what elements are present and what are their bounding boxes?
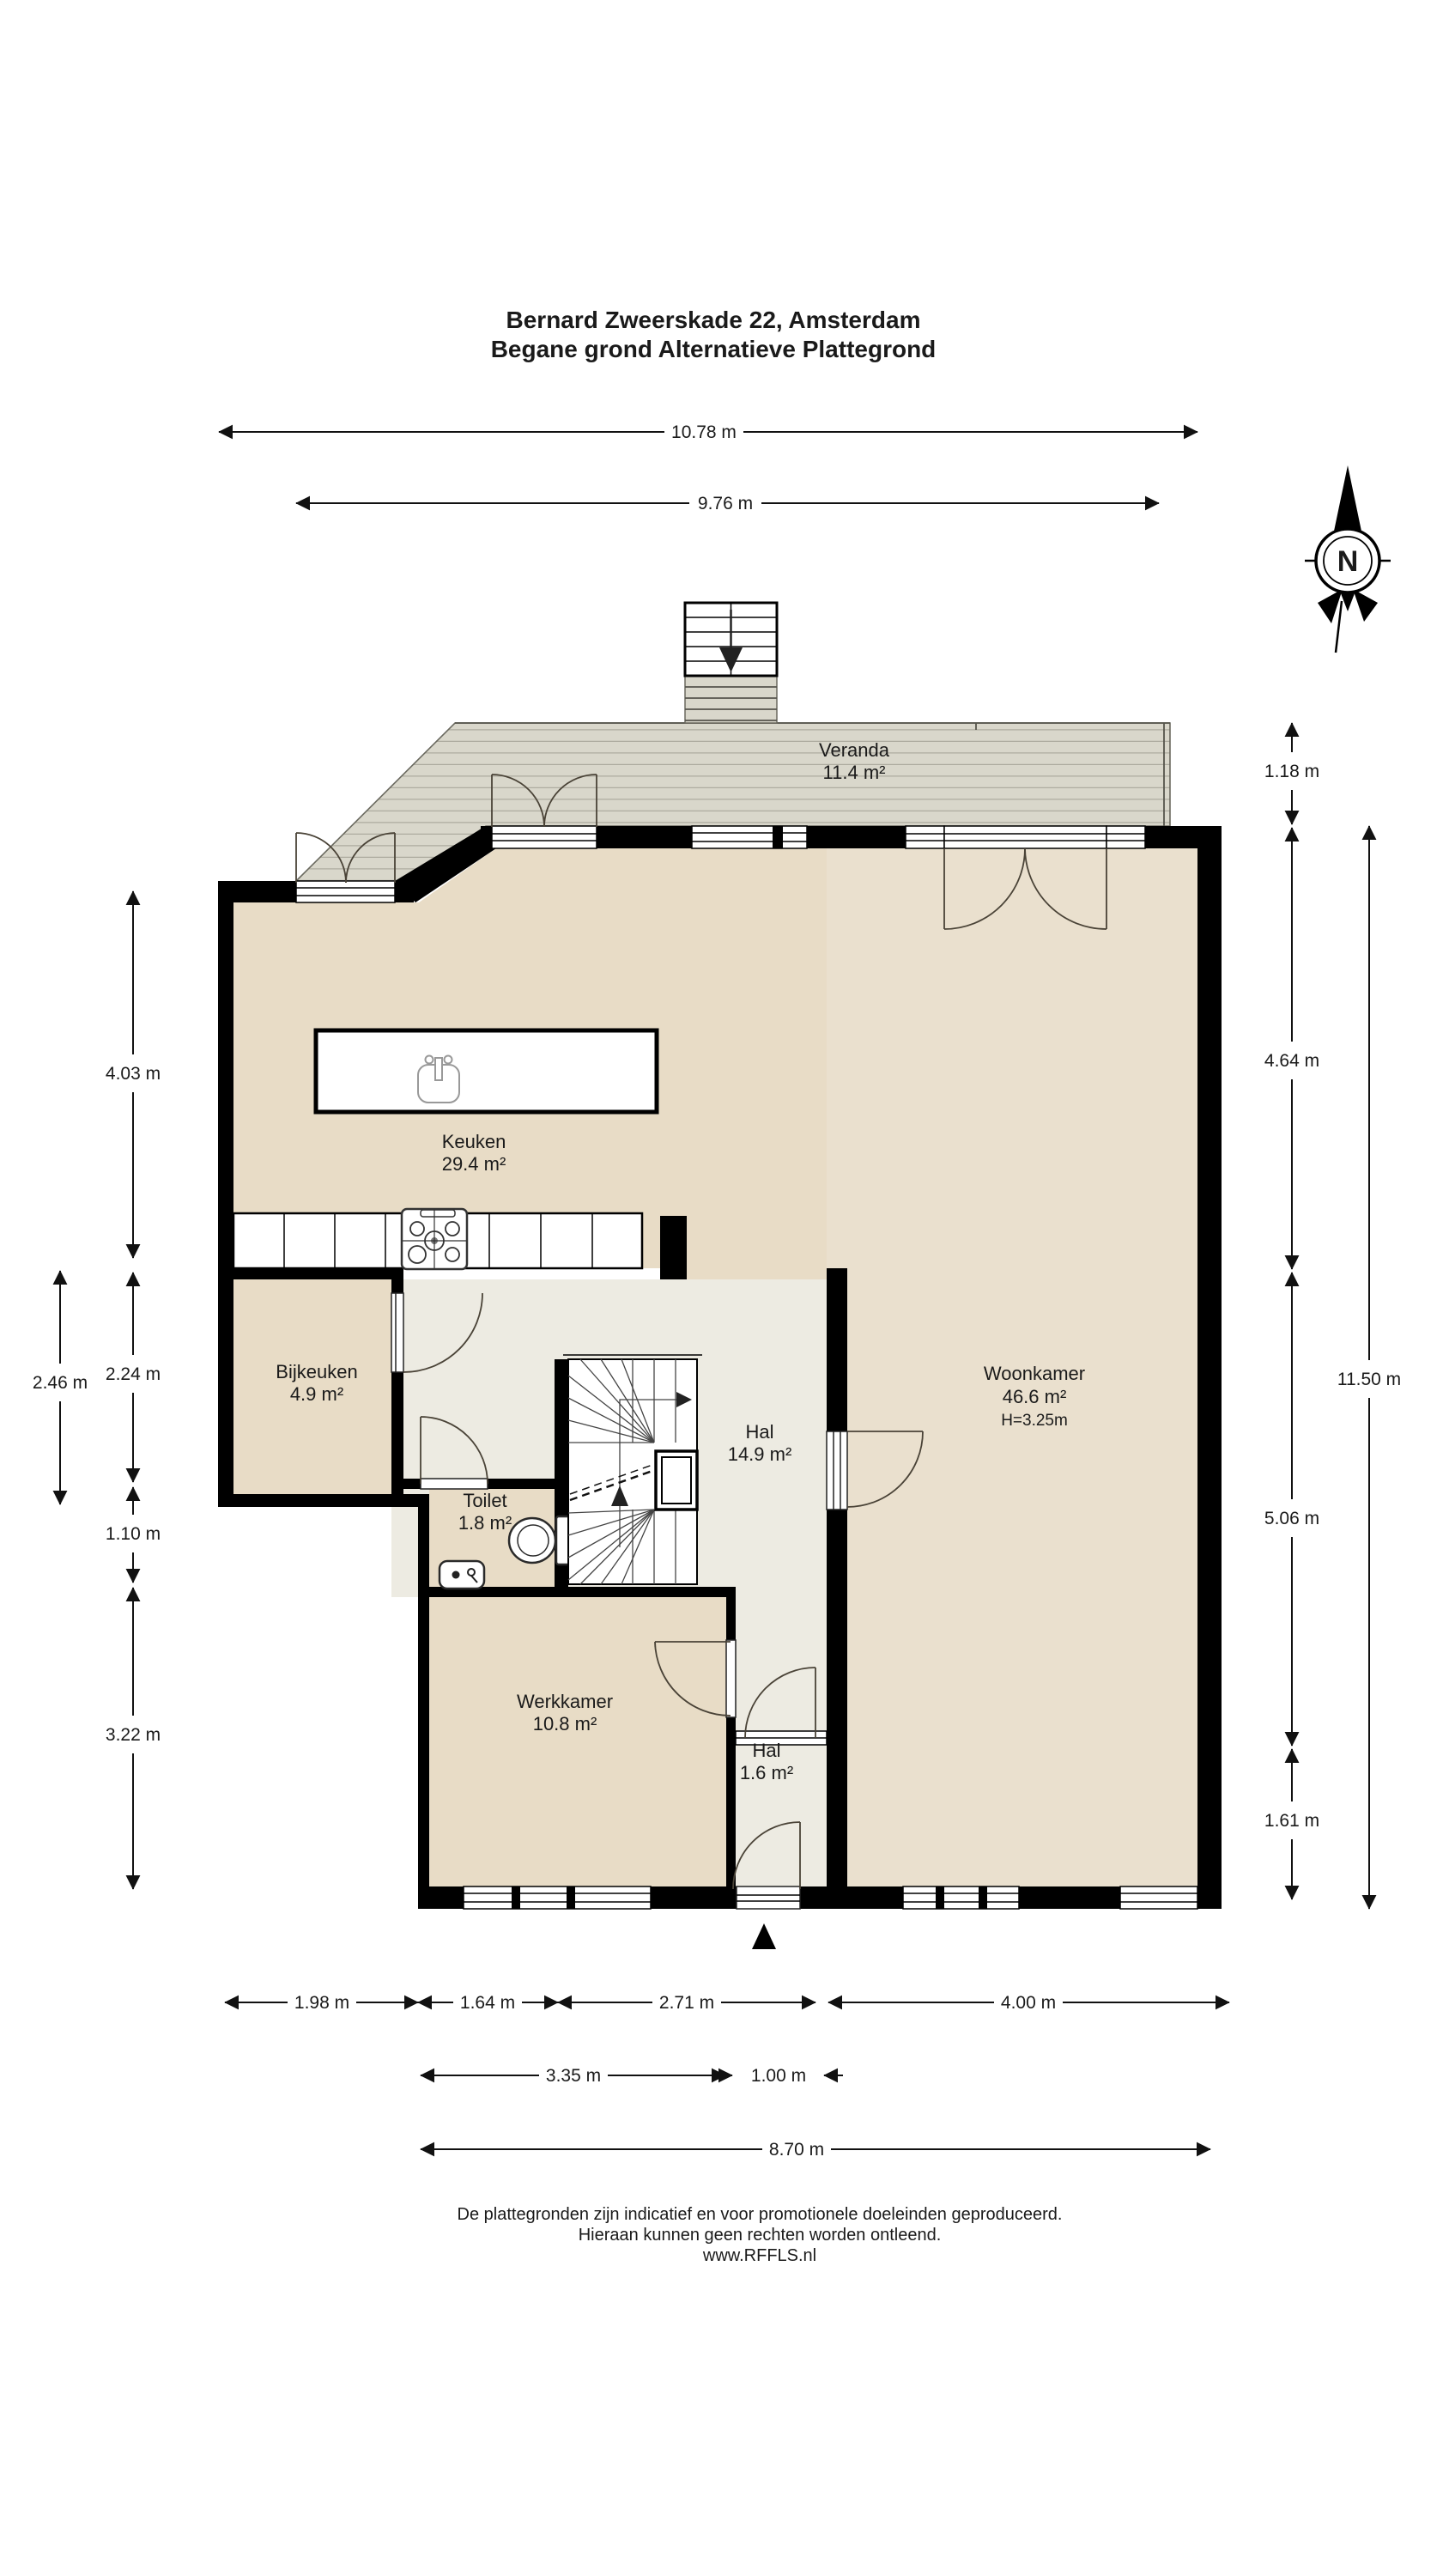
dim-left-110: 1.10 m	[106, 1524, 161, 1544]
kitchen-island	[316, 1030, 657, 1112]
dim-right-118: 1.18 m	[1264, 762, 1319, 781]
keuken-wall-stub	[660, 1216, 687, 1279]
window	[903, 1886, 1019, 1909]
hal2-label: Hal	[752, 1740, 780, 1761]
page-title: Bernard Zweerskade 22, Amsterdam Begane …	[491, 307, 937, 362]
bijkeuken-area: 4.9 m²	[290, 1383, 343, 1405]
woonkamer-label: Woonkamer	[984, 1363, 1085, 1384]
window-threshold	[492, 826, 597, 848]
dim-right-464: 4.64 m	[1264, 1051, 1319, 1071]
dim-right-161: 1.61 m	[1264, 1811, 1319, 1831]
disclaimer-line2: Hieraan kunnen geen rechten worden ontle…	[579, 2226, 942, 2245]
toilet-icon	[509, 1516, 571, 1564]
dim-right-506: 5.06 m	[1264, 1509, 1319, 1528]
veranda-area: 11.4 m²	[823, 762, 886, 783]
woonkamer-area: 46.6 m²	[1003, 1386, 1067, 1407]
washbasin-icon	[440, 1561, 484, 1589]
dim-right-1150: 11.50 m	[1337, 1370, 1401, 1389]
window-threshold	[944, 826, 1106, 848]
dim-top-2: 9.76 m	[698, 494, 753, 513]
window	[692, 826, 807, 848]
dim-left-246: 2.46 m	[33, 1373, 88, 1393]
dim-left-224: 2.24 m	[106, 1364, 161, 1384]
window-threshold	[736, 1731, 827, 1745]
window	[1120, 1886, 1197, 1909]
dim-top-1: 10.78 m	[671, 422, 737, 442]
woonkamer-west-wall	[827, 1268, 847, 1886]
dim-bottom-100: 1.00 m	[751, 2066, 806, 2086]
keuken-area: 29.4 m²	[442, 1153, 506, 1175]
title-line2: Begane grond Alternatieve Plattegrond	[491, 336, 937, 362]
kitchen-counter	[233, 1209, 642, 1269]
toilet-label: Toilet	[463, 1490, 506, 1511]
keuken-floor-strip	[687, 1216, 827, 1279]
werkkamer-label: Werkkamer	[517, 1691, 613, 1712]
window	[1106, 826, 1145, 848]
dim-bottom-271: 2.71 m	[659, 1993, 714, 2013]
keuken-bijkeuken-wall	[218, 1268, 403, 1279]
dim-left-322: 3.22 m	[106, 1725, 161, 1745]
dim-bottom-164: 1.64 m	[460, 1993, 515, 2013]
werkkamer-right-wall	[726, 1587, 736, 1909]
dim-left-403: 4.03 m	[106, 1064, 161, 1084]
entrance-arrow-icon	[752, 1923, 776, 1949]
werkkamer-floor	[429, 1597, 726, 1886]
compass-north-icon: N	[1305, 465, 1391, 653]
woonkamer-height: H=3.25m	[1001, 1412, 1068, 1430]
window-threshold	[296, 881, 395, 902]
disclaimer-line1: De plattegronden zijn indicatief en voor…	[458, 2205, 1063, 2224]
disclaimer-website: www.RFFLS.nl	[702, 2246, 816, 2265]
toilet-area: 1.8 m²	[458, 1512, 512, 1534]
floorplan-page: Bernard Zweerskade 22, Amsterdam Begane …	[0, 0, 1449, 2576]
keuken-label: Keuken	[442, 1131, 506, 1152]
veranda-label: Veranda	[819, 739, 890, 761]
entry-steps	[685, 603, 777, 723]
disclaimer: De plattegronden zijn indicatief en voor…	[458, 2205, 1063, 2265]
hal-label: Hal	[745, 1421, 773, 1443]
window	[464, 1886, 651, 1909]
window	[906, 826, 944, 848]
floorplan-drawing: Bernard Zweerskade 22, Amsterdam Begane …	[0, 0, 1449, 2576]
dim-bottom-335: 3.35 m	[546, 2066, 601, 2086]
title-line1: Bernard Zweerskade 22, Amsterdam	[506, 307, 921, 333]
stove-icon	[402, 1209, 467, 1269]
hal2-area: 1.6 m²	[740, 1762, 793, 1783]
dim-bottom-198: 1.98 m	[294, 1993, 349, 2013]
dim-bottom-400: 4.00 m	[1001, 1993, 1056, 2013]
werkkamer-area: 10.8 m²	[533, 1713, 597, 1735]
compass-n-label: N	[1337, 545, 1359, 578]
staircase	[563, 1355, 702, 1584]
bijkeuken-label: Bijkeuken	[276, 1361, 357, 1382]
hal-area: 14.9 m²	[728, 1443, 792, 1465]
dim-bottom-870: 8.70 m	[769, 2140, 824, 2160]
